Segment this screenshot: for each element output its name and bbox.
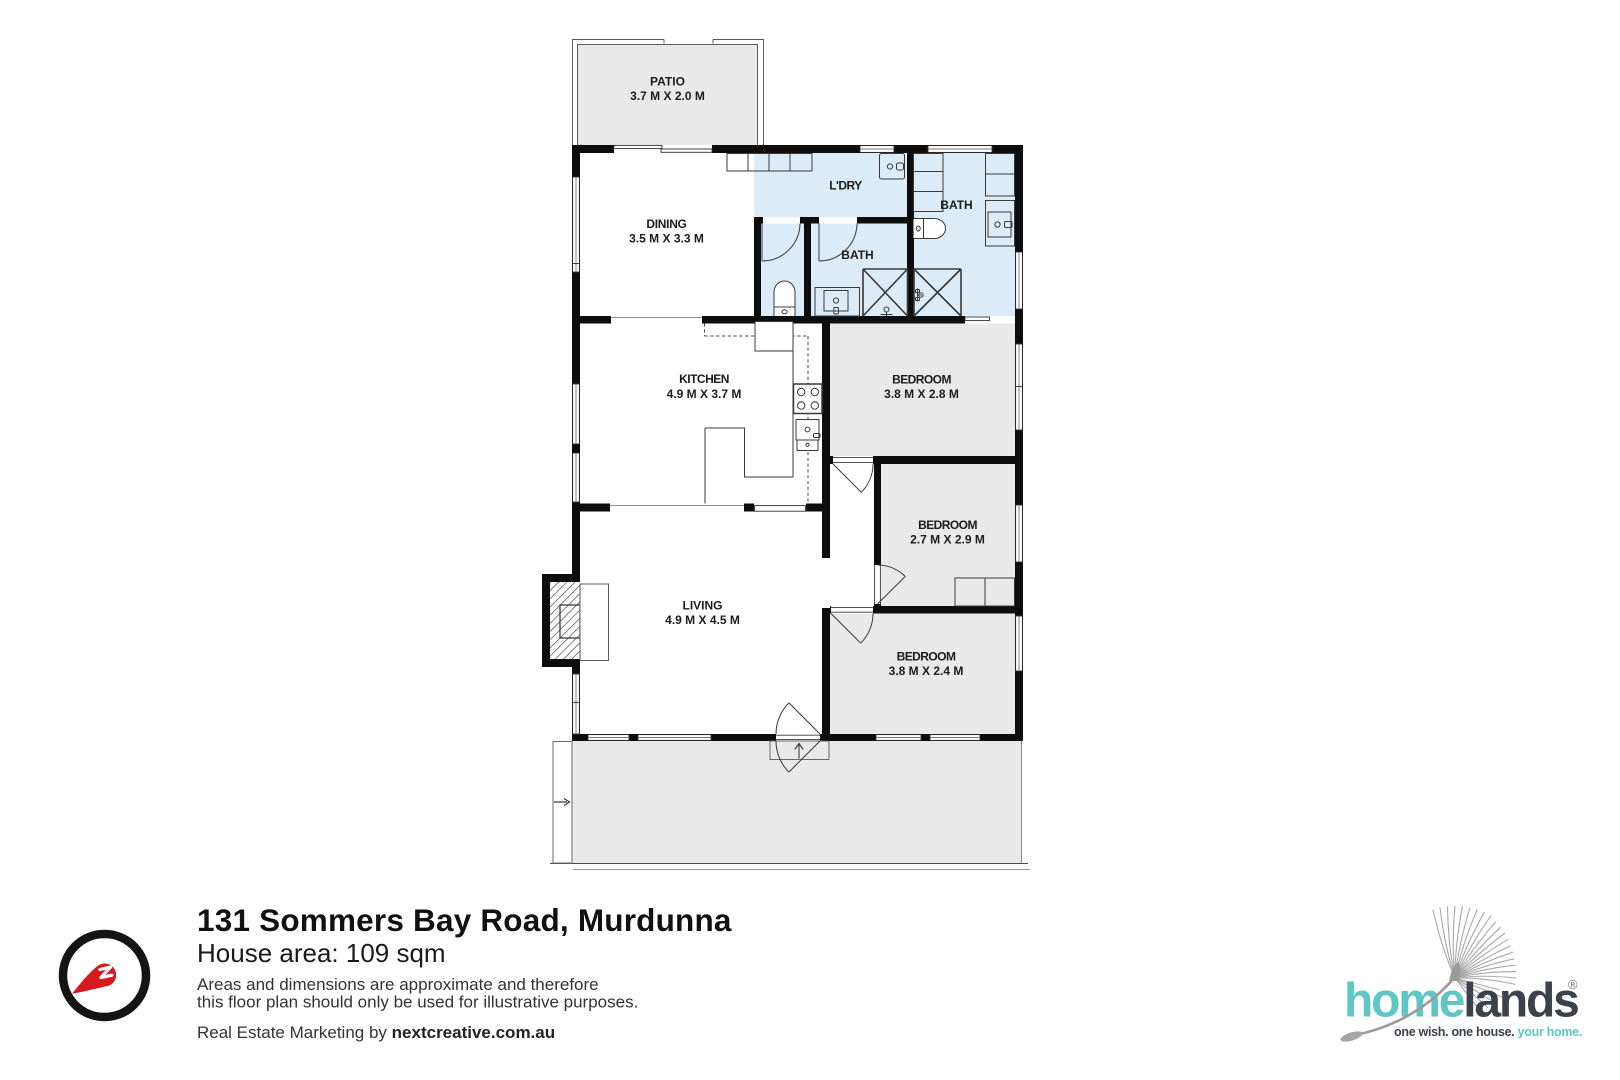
svg-text:LIVING: LIVING (682, 598, 722, 612)
svg-text:House area: 109 sqm: House area: 109 sqm (197, 938, 446, 968)
svg-text:L'DRY: L'DRY (829, 179, 862, 193)
svg-text:3.5 M X 3.3 M: 3.5 M X 3.3 M (629, 232, 704, 246)
svg-text:BEDROOM: BEDROOM (892, 372, 951, 386)
svg-text:3.8 M X 2.4 M: 3.8 M X 2.4 M (889, 664, 964, 678)
svg-text:3.7 M X 2.0 M: 3.7 M X 2.0 M (630, 89, 705, 103)
svg-text:Areas and dimensions are appro: Areas and dimensions are approximate and… (197, 975, 599, 994)
svg-text:2.7 M X 2.9 M: 2.7 M X 2.9 M (910, 533, 985, 547)
svg-text:KITCHEN: KITCHEN (679, 372, 729, 386)
svg-text:homelands: homelands (1344, 975, 1578, 1028)
svg-text:4.9 M X 3.7 M: 4.9 M X 3.7 M (667, 387, 742, 401)
svg-text:BATH: BATH (940, 198, 972, 212)
svg-text:Real Estate Marketing by nextc: Real Estate Marketing by nextcreative.co… (197, 1023, 555, 1042)
svg-text:4.9 M X 4.5 M: 4.9 M X 4.5 M (665, 613, 740, 627)
svg-text:®: ® (1568, 977, 1578, 992)
svg-text:DINING: DINING (646, 217, 686, 231)
svg-text:one wish. one house. your home: one wish. one house. your home. (1394, 1025, 1582, 1039)
svg-text:this floor plan should only be: this floor plan should only be used for … (197, 993, 638, 1012)
svg-text:BATH: BATH (841, 248, 873, 262)
svg-text:BEDROOM: BEDROOM (918, 518, 977, 532)
svg-text:BEDROOM: BEDROOM (897, 649, 956, 663)
svg-text:3.8 M X 2.8 M: 3.8 M X 2.8 M (884, 387, 959, 401)
svg-text:PATIO: PATIO (650, 75, 685, 89)
svg-text:131 Sommers Bay Road, Murdunna: 131 Sommers Bay Road, Murdunna (197, 902, 732, 938)
